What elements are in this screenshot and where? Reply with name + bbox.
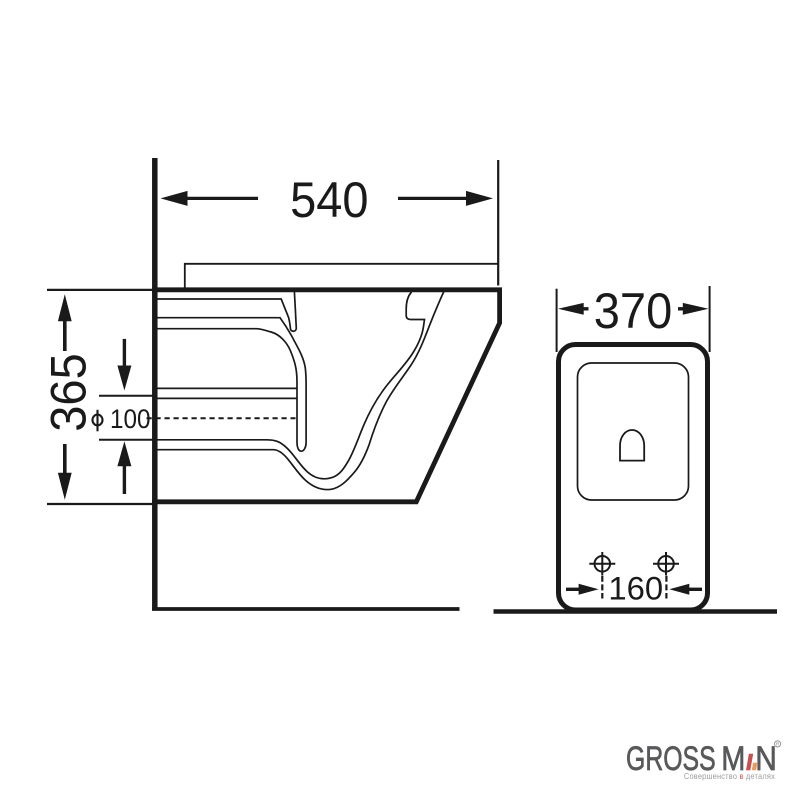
svg-text:Совершенство в деталях: Совершенство в деталях bbox=[684, 772, 775, 781]
svg-text:370: 370 bbox=[594, 284, 672, 340]
svg-text:160: 160 bbox=[608, 569, 663, 606]
svg-text:R: R bbox=[776, 742, 780, 748]
svg-text:540: 540 bbox=[290, 172, 368, 228]
svg-text:100: 100 bbox=[110, 405, 151, 434]
svg-text:365: 365 bbox=[41, 353, 97, 431]
